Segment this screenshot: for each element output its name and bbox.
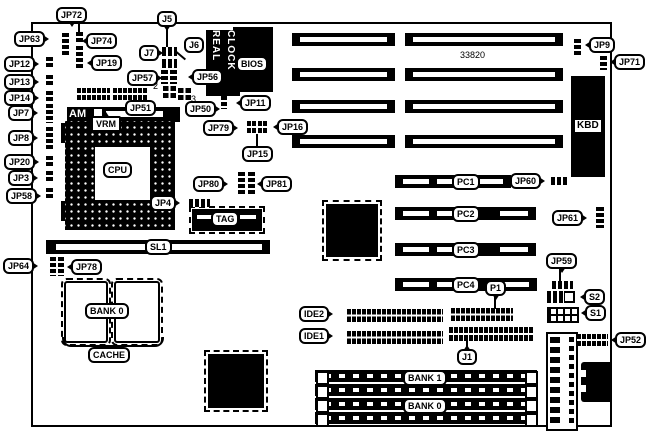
callout-jp14: JP14 (4, 90, 35, 106)
jumper-block (178, 88, 191, 100)
motherboard-diagram: 33820 JP9 JP71 KBD PC1 JP60 PC2 JP61 PC3… (0, 0, 657, 434)
jumper-jp19 (76, 58, 83, 70)
simm-clip (525, 413, 538, 427)
tag-chip-window (240, 215, 256, 219)
callout-jp58: JP58 (6, 188, 37, 204)
callout-jp15: JP15 (242, 146, 273, 162)
jumper-block (247, 121, 256, 133)
callout-jp78: JP78 (71, 259, 102, 275)
callout-s2: S2 (584, 289, 605, 305)
callout-sl1: SL1 (145, 239, 172, 255)
keyboard-din-connector (581, 362, 612, 402)
callout-jp79: JP79 (203, 120, 234, 136)
callout-pc2: PC2 (452, 206, 480, 222)
callout-ide1: IDE1 (299, 328, 329, 344)
callout-bank1: BANK 1 (403, 370, 447, 386)
isa-slot-segment (292, 33, 395, 46)
chipset-qfp (326, 204, 378, 257)
callout-bios: BIOS (236, 56, 268, 72)
jumper-jp12 (46, 57, 53, 68)
callout-jp80: JP80 (193, 176, 224, 192)
kbd-label: KBD (575, 120, 601, 132)
callout-jp63: JP63 (14, 31, 45, 47)
simm-clip (525, 371, 538, 385)
dip-switch-s2 (547, 291, 575, 303)
asic-marking: 33820 (460, 50, 485, 60)
callout-jp20: JP20 (4, 154, 35, 170)
callout-j1: J1 (457, 349, 477, 365)
callout-cpu: CPU (103, 162, 132, 178)
jumper-jp4 (189, 199, 210, 207)
callout-pc1: PC1 (452, 174, 480, 190)
callout-p1: P1 (485, 280, 506, 296)
isa-slot-segment (405, 68, 563, 81)
jumper-jp64 (50, 257, 56, 276)
callout-cache: CACHE (88, 347, 130, 363)
rtc-word-real: REAL (208, 30, 223, 96)
j1-header (449, 327, 533, 341)
callout-jp16: JP16 (277, 119, 308, 135)
socket-brand-text: AM (69, 108, 86, 121)
callout-pc4: PC4 (452, 277, 480, 293)
dip-switch-s1 (547, 307, 579, 323)
callout-jp13: JP13 (4, 74, 35, 90)
callout-jp19: JP19 (91, 55, 122, 71)
jumper-jp13 (46, 75, 53, 87)
callout-jp11: JP11 (240, 95, 271, 111)
ide2-header (347, 309, 443, 322)
socket-tab (61, 201, 65, 221)
callout-tag: TAG (211, 211, 239, 227)
simm-clip (316, 371, 329, 385)
jumper-jp8 (46, 127, 53, 150)
cache-brace (62, 337, 164, 347)
callout-j7: J7 (139, 45, 159, 61)
isa-slot-segment (292, 68, 395, 81)
jumper-jp80 (238, 172, 245, 196)
isa-slot-segment (292, 135, 395, 148)
callout-jp50: JP50 (185, 101, 216, 117)
callout-jp4: JP4 (150, 195, 176, 211)
vrm-header-left (77, 88, 110, 100)
callout-pc3: PC3 (452, 242, 480, 258)
callout-jp64: JP64 (3, 258, 34, 274)
p1-header (451, 308, 513, 321)
simm-clip (525, 399, 538, 413)
callout-jp61: JP61 (552, 210, 583, 226)
vrm-header-right (113, 88, 148, 100)
callout-vrm: VRM (91, 116, 121, 132)
isa-slot-segment (405, 135, 563, 148)
jumper-jp61 (596, 207, 604, 228)
jumper-jp63 (62, 33, 69, 56)
simm-clip (316, 413, 329, 427)
rtc-chip: CLOCK REAL (206, 30, 240, 96)
connector-jp52 (577, 334, 608, 346)
jumper-block (258, 121, 267, 133)
callout-jp71: JP71 (614, 54, 645, 70)
callout-jp8: JP8 (8, 130, 34, 146)
jumper-jp74 (76, 46, 83, 57)
jumper-block (163, 86, 176, 98)
jumper-jp59 (552, 281, 573, 289)
isa-slot-segment (405, 100, 563, 113)
ide1-header (347, 331, 443, 344)
jumper-jp58 (46, 188, 53, 200)
jumper-jp60 (551, 177, 568, 185)
simm-clip (316, 399, 329, 413)
jumper-jp3 (46, 171, 53, 183)
callout-jp81: JP81 (261, 176, 292, 192)
callout-jp12: JP12 (4, 56, 35, 72)
callout-jp7: JP7 (8, 105, 34, 121)
callout-jp59: JP59 (546, 253, 577, 269)
callout-jp52: JP52 (615, 332, 646, 348)
jumper-jp14 (46, 91, 53, 102)
callout-j5: J5 (157, 11, 177, 27)
rtc-marking: CLOCK REAL (206, 30, 240, 96)
jumper-jp56 (170, 70, 177, 84)
callout-jp56: JP56 (192, 69, 223, 85)
jumper-j6 (162, 59, 177, 68)
callout-ide2: IDE2 (299, 306, 329, 322)
callout-cache-bank0: BANK 0 (85, 303, 129, 319)
simm-clip (525, 385, 538, 399)
io-qfp (208, 354, 264, 408)
jumper-jp20 (46, 156, 53, 168)
callout-jp72: JP72 (56, 7, 87, 23)
socket-top-bar: AM (67, 107, 180, 122)
isa-slot-segment (292, 100, 395, 113)
jumper-jp7 (46, 104, 53, 123)
power-connector (546, 332, 578, 431)
jumper-jp9 (574, 39, 581, 56)
pin2-text: 2 (153, 81, 158, 91)
callout-jp51: JP51 (125, 100, 156, 116)
callout-bank0: BANK 0 (403, 398, 447, 414)
isa-slot-segment (405, 33, 563, 46)
callout-j6: J6 (184, 37, 204, 53)
callout-jp3: JP3 (8, 170, 34, 186)
socket-tab (61, 123, 65, 143)
callout-jp9: JP9 (589, 37, 615, 53)
callout-jp60: JP60 (510, 173, 541, 189)
callout-jp74: JP74 (86, 33, 117, 49)
simm-clip (316, 385, 329, 399)
callout-s1: S1 (585, 305, 606, 321)
